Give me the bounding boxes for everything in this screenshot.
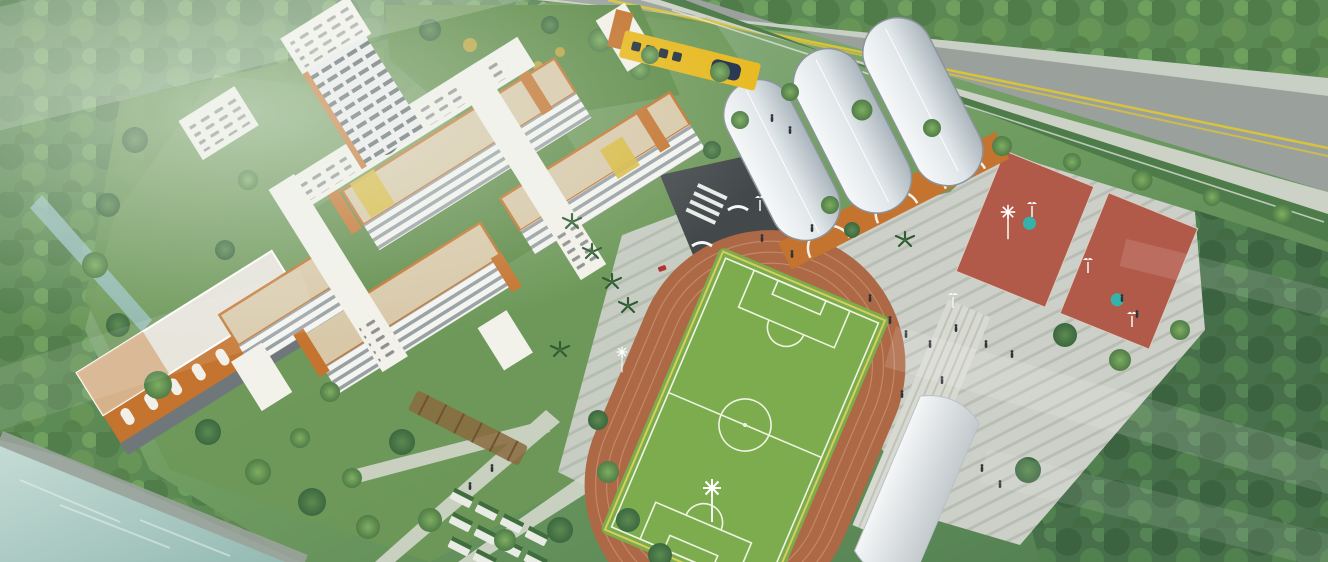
- campus-rendering: [0, 0, 1328, 562]
- screenshot-root: [0, 0, 1328, 562]
- haze-radial: [0, 0, 1328, 562]
